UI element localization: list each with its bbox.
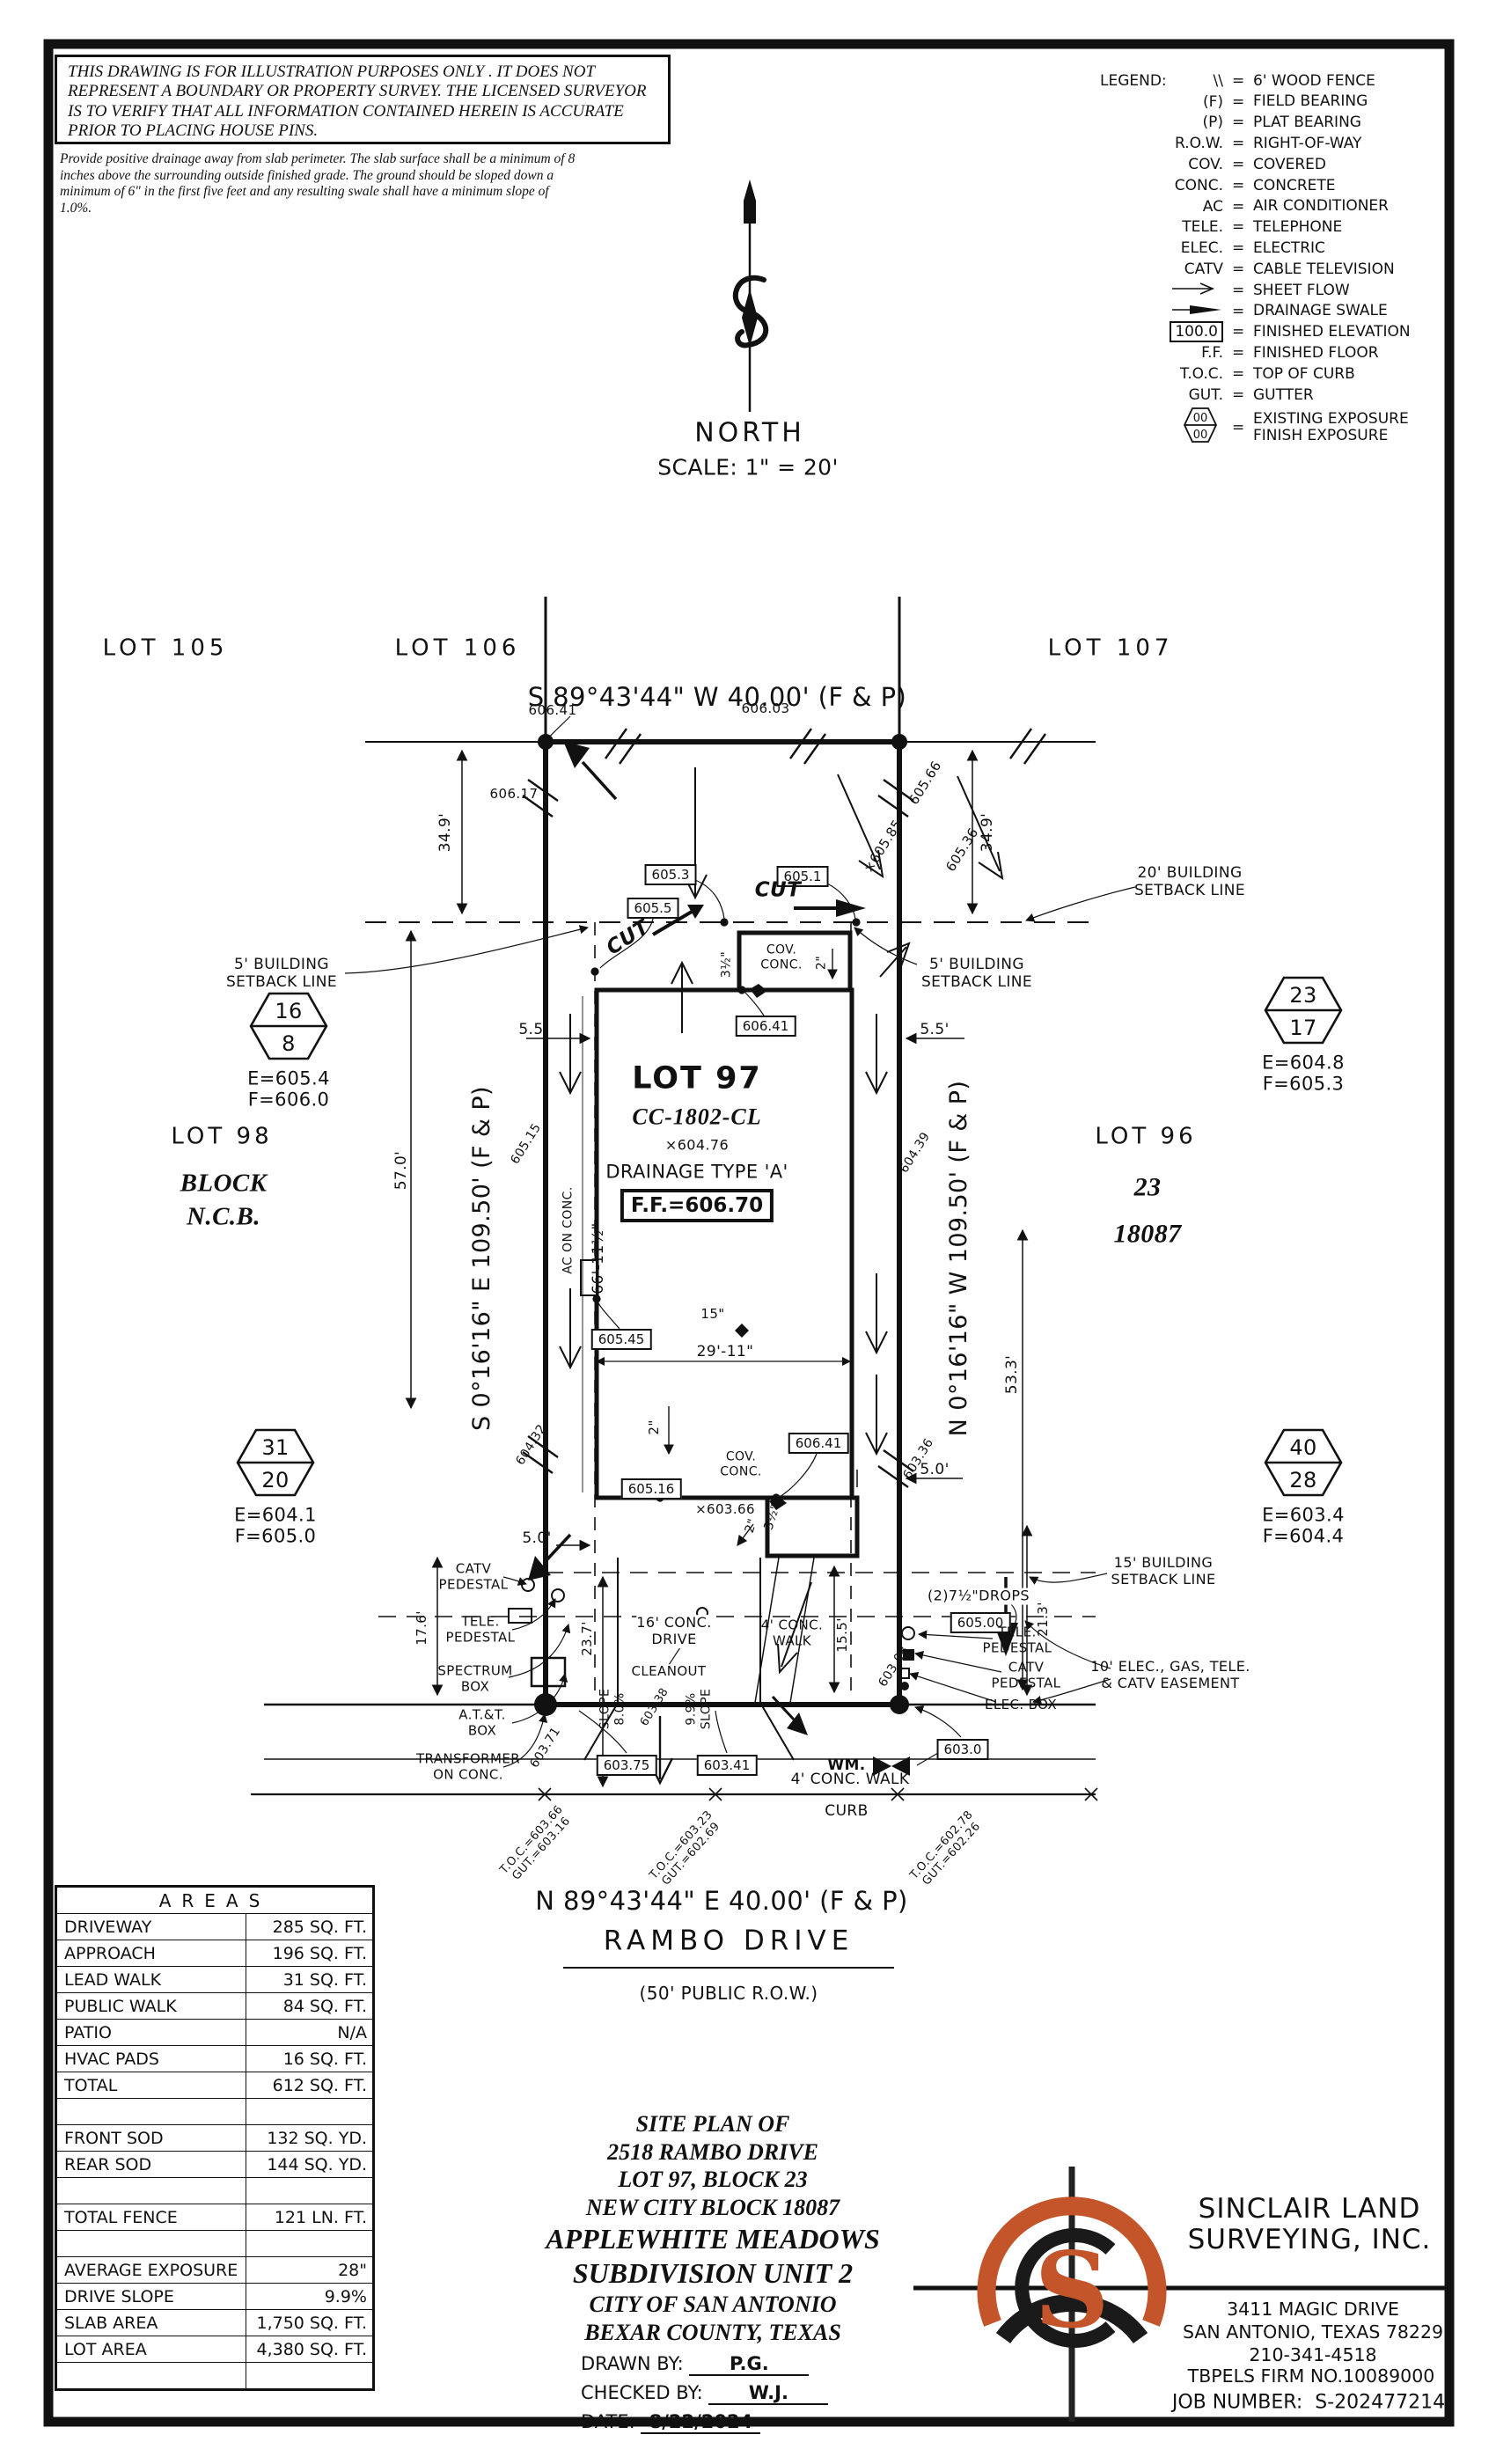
legend-symbol: ELEC. bbox=[1100, 239, 1232, 257]
legend: LEGEND: \\ = 6' WOOD FENCE (F)=FIELD BEA… bbox=[1100, 70, 1456, 450]
model-label: CC-1802-CL bbox=[632, 1104, 761, 1132]
block-23-label: 23 bbox=[1134, 1171, 1162, 1202]
svg-text:00: 00 bbox=[1193, 412, 1208, 425]
legend-symbol: T.O.C. bbox=[1100, 365, 1232, 383]
legend-symbol: CATV bbox=[1100, 260, 1232, 278]
exposure-hexagon-icon: 0000 bbox=[1100, 405, 1232, 450]
hex-marker-bottom: 8 bbox=[282, 1031, 296, 1056]
legend-symbol: F.F. bbox=[1100, 344, 1232, 362]
elevation-box: 605.5 bbox=[627, 898, 679, 919]
utility-symbols bbox=[509, 1579, 914, 1776]
lot-96-label: LOT 96 bbox=[1095, 1124, 1196, 1151]
legend-symbol: (P) bbox=[1100, 114, 1232, 131]
legend-symbol: \\ bbox=[1177, 72, 1232, 90]
finished-elevation-icon: 100.0 bbox=[1100, 323, 1232, 341]
checked-by-label: CHECKED BY: bbox=[581, 2382, 703, 2403]
legend-symbol: COV. bbox=[1100, 156, 1232, 173]
dim-57-0: 57.0' bbox=[392, 1151, 410, 1191]
table-row: LOT AREA4,380 SQ. FT. bbox=[56, 2336, 374, 2363]
covered-concrete-label: COV. CONC. bbox=[720, 1449, 762, 1478]
subdivision-name: APPLEWHITE MEADOWS bbox=[475, 2222, 950, 2256]
dim-17-6: 17.6' bbox=[414, 1610, 430, 1646]
firm-address1: 3411 MAGIC DRIVE bbox=[1227, 2299, 1399, 2320]
catv-pedestal-right-label: CATV PEDESTAL bbox=[992, 1660, 1061, 1690]
dim-21-3: 21.3' bbox=[1036, 1602, 1052, 1637]
lot-97-label: LOT 97 bbox=[632, 1060, 762, 1096]
table-row: LEAD WALK31 SQ. FT. bbox=[56, 1967, 374, 1993]
hex-marker-top: 23 bbox=[1289, 983, 1316, 1008]
title-line: CITY OF SAN ANTONIO bbox=[475, 2291, 950, 2319]
areas-table: AREAS DRIVEWAY285 SQ. FT. APPROACH196 SQ… bbox=[55, 1885, 375, 2391]
block-ncb-label: BLOCK N.C.B. bbox=[180, 1167, 268, 1233]
disclaimer-caps-text: THIS DRAWING IS FOR ILLUSTRATION PURPOSE… bbox=[68, 62, 657, 142]
spectrum-box-label: SPECTRUM BOX bbox=[437, 1663, 512, 1694]
dim-15-5: 15.5' bbox=[835, 1617, 851, 1653]
leader-lines bbox=[345, 716, 1135, 1767]
subdivision-unit: SUBDIVISION UNIT 2 bbox=[475, 2256, 950, 2291]
table-row: PUBLIC WALK84 SQ. FT. bbox=[56, 1993, 374, 2020]
survey-sheet: S THIS DRAWING IS FOR ILLUSTRATION PURPO… bbox=[0, 0, 1496, 2464]
legend-symbol: TELE. bbox=[1100, 218, 1232, 236]
elevation-box: 605.45 bbox=[591, 1329, 652, 1350]
table-row: FRONT SOD132 SQ. YD. bbox=[56, 2125, 374, 2152]
table-row: AVERAGE EXPOSURE28" bbox=[56, 2257, 374, 2284]
covered-concrete-label: COV. CONC. bbox=[760, 942, 803, 972]
spot-elevation: 606.41 bbox=[529, 703, 577, 719]
svg-text:00: 00 bbox=[1193, 429, 1208, 442]
hex-marker-bottom: 20 bbox=[261, 1468, 289, 1492]
drawn-by-label: DRAWN BY: bbox=[581, 2353, 684, 2374]
finish-exposure: F=604.4 bbox=[1263, 1526, 1345, 1548]
dim-53-3: 53.3' bbox=[1003, 1355, 1021, 1395]
setback-15-label: 15' BUILDING SETBACK LINE bbox=[1111, 1555, 1216, 1588]
drawn-by-value: P.G. bbox=[689, 2353, 809, 2376]
title-line: 2518 RAMBO DRIVE bbox=[475, 2138, 950, 2167]
cleanout-label: CLEANOUT bbox=[632, 1664, 707, 1680]
spot-elevation: ×603.66 bbox=[695, 1502, 755, 1518]
lot-106-label: LOT 106 bbox=[395, 635, 521, 663]
elevation-box: 603.0 bbox=[937, 1739, 989, 1760]
table-row: TOTAL612 SQ. FT. bbox=[56, 2072, 374, 2099]
table-row: REAR SOD144 SQ. YD. bbox=[56, 2152, 374, 2178]
elevation-box: 606.41 bbox=[788, 1433, 849, 1454]
ac-on-conc-label: AC ON CONC. bbox=[561, 1186, 576, 1273]
conc-drive-label: 16' CONC. DRIVE bbox=[636, 1615, 711, 1648]
bearing-bottom: N 89°43'44" E 40.00' (F & P) bbox=[535, 1886, 907, 1916]
table-row bbox=[56, 2178, 374, 2204]
elevation-box: 606.41 bbox=[736, 1016, 796, 1037]
legend-symbol: GUT. bbox=[1100, 386, 1232, 404]
disclaimer-note-text: Provide positive drainage away from slab… bbox=[60, 151, 579, 216]
dim-5-5-right: 5.5' bbox=[920, 1021, 949, 1038]
sheet-flow-icon bbox=[1100, 282, 1232, 299]
table-row: HVAC PADS16 SQ. FT. bbox=[56, 2046, 374, 2072]
svg-text:S: S bbox=[1034, 2229, 1109, 2351]
scale-label: SCALE: 1" = 20' bbox=[657, 454, 838, 480]
street-name-label: RAMBO DRIVE bbox=[604, 1925, 854, 1958]
legend-symbol: CONC. bbox=[1100, 177, 1232, 194]
transformer-label: TRANSFORMER ON CONC. bbox=[416, 1751, 520, 1782]
dim-5-0-left: 5.0' bbox=[522, 1529, 551, 1547]
conc-walk-street-label: 4' CONC. WALK bbox=[791, 1771, 910, 1788]
table-row: PATION/A bbox=[56, 2020, 374, 2046]
spot-elevation: 606.17 bbox=[490, 787, 539, 803]
street-row-label: (50' PUBLIC R.O.W.) bbox=[640, 1984, 818, 2005]
tele-pedestal-label: TELE. PEDESTAL bbox=[446, 1614, 516, 1645]
hex-marker-bottom: 17 bbox=[1289, 1016, 1316, 1040]
north-label: NORTH bbox=[694, 417, 805, 448]
firm-name-line1: SINCLAIR LAND bbox=[1199, 2193, 1421, 2225]
elevation-box: 603.75 bbox=[597, 1755, 657, 1776]
house-outline bbox=[581, 933, 857, 1556]
spot-elevation: ×604.76 bbox=[665, 1138, 729, 1155]
hex-marker-top: 40 bbox=[1289, 1435, 1316, 1460]
table-row: APPROACH196 SQ. FT. bbox=[56, 1940, 374, 1967]
bearing-right: N 0°16'16" W 109.50' (F & P) bbox=[945, 1081, 973, 1437]
table-row bbox=[56, 2099, 374, 2125]
table-row bbox=[56, 2231, 374, 2257]
setback-20-label: 20' BUILDING SETBACK LINE bbox=[1134, 864, 1245, 899]
ncb-18087-label: 18087 bbox=[1114, 1218, 1182, 1249]
catv-pedestal-label: CATV PEDESTAL bbox=[439, 1561, 509, 1592]
elevation-box: 605.3 bbox=[645, 864, 697, 885]
slope-8-label: SLOPE 8.0% bbox=[598, 1689, 627, 1730]
table-row: TOTAL FENCE121 LN. FT. bbox=[56, 2204, 374, 2231]
firm-address2: SAN ANTONIO, TEXAS 78229 bbox=[1183, 2321, 1443, 2343]
existing-exposure: E=604.1 bbox=[234, 1505, 317, 1527]
title-line: NEW CITY BLOCK 18087 bbox=[475, 2194, 950, 2222]
table-row: DRIVEWAY285 SQ. FT. bbox=[56, 1914, 374, 1940]
lot-107-label: LOT 107 bbox=[1048, 635, 1174, 663]
checked-by-value: W.J. bbox=[708, 2382, 828, 2405]
legend-row: LEGEND: \\ = 6' WOOD FENCE bbox=[1100, 70, 1456, 92]
curb-label: CURB bbox=[825, 1802, 868, 1820]
drainage-type-label: DRAINAGE TYPE 'A' bbox=[605, 1162, 788, 1184]
hex-marker-top: 31 bbox=[261, 1435, 289, 1460]
dim-5-5-left: 5.5' bbox=[518, 1021, 547, 1038]
dim-2in: 2" bbox=[647, 1419, 663, 1434]
setback-5-left-label: 5' BUILDING SETBACK LINE bbox=[226, 956, 337, 991]
finish-exposure: F=605.0 bbox=[235, 1526, 317, 1548]
north-arrow-icon bbox=[736, 180, 766, 412]
firm-tbpels: TBPELS FIRM NO.10089000 bbox=[1188, 2365, 1435, 2387]
att-box-label: A.T.&T. BOX bbox=[458, 1707, 506, 1738]
title-line: BEXAR COUNTY, TEXAS bbox=[475, 2319, 950, 2347]
setback-5-right-label: 5' BUILDING SETBACK LINE bbox=[921, 956, 1032, 991]
existing-exposure: E=605.4 bbox=[247, 1068, 330, 1090]
lot-105-label: LOT 105 bbox=[103, 635, 229, 663]
spot-elevation: 606.03 bbox=[742, 701, 790, 717]
dim-2in: 2" bbox=[815, 956, 830, 970]
title-block: SITE PLAN OF 2518 RAMBO DRIVE LOT 97, BL… bbox=[475, 2110, 950, 2434]
date-value: 8/22/2024 bbox=[641, 2411, 760, 2434]
elevation-box: 603.41 bbox=[697, 1755, 758, 1776]
easement-10-label: 10' ELEC., GAS, TELE. & CATV EASEMENT bbox=[1090, 1659, 1250, 1692]
lot-98-label: LOT 98 bbox=[171, 1124, 272, 1151]
table-row: DRIVE SLOPE9.9% bbox=[56, 2284, 374, 2310]
title-line: LOT 97, BLOCK 23 bbox=[475, 2166, 950, 2194]
bearing-top: S 89°43'44" W 40.00' (F & P) bbox=[528, 682, 907, 712]
dim-3-5in: 3½" bbox=[720, 951, 735, 978]
conc-walk-label: 4' CONC. WALK bbox=[761, 1617, 823, 1648]
table-row bbox=[56, 2363, 374, 2390]
cut-arrows bbox=[653, 899, 866, 935]
finish-exposure: F=605.3 bbox=[1263, 1074, 1345, 1096]
title-line: SITE PLAN OF bbox=[475, 2110, 950, 2138]
bearing-left: S 0°16'16" E 109.50' (F & P) bbox=[468, 1086, 496, 1431]
dim-29-11: 29'-11" bbox=[692, 1343, 759, 1360]
dim-15in: 15" bbox=[700, 1307, 724, 1323]
areas-title: AREAS bbox=[56, 1887, 374, 1914]
legend-title: LEGEND: bbox=[1100, 72, 1177, 90]
existing-exposure: E=603.4 bbox=[1262, 1505, 1345, 1527]
hex-marker-top: 16 bbox=[275, 999, 302, 1023]
dim-23-7: 23.7' bbox=[580, 1621, 596, 1656]
dim-34-9-left: 34.9' bbox=[436, 813, 454, 853]
firm-name-line2: SURVEYING, INC. bbox=[1188, 2224, 1432, 2255]
existing-exposure: E=604.8 bbox=[1262, 1052, 1345, 1074]
drops-label: (2)7½"DROPS bbox=[928, 1588, 1030, 1605]
job-number: JOB NUMBER: S-202477214 bbox=[1172, 2392, 1445, 2414]
elec-box-label: ELEC. BOX bbox=[985, 1698, 1057, 1713]
finished-floor-box: F.F.=606.70 bbox=[620, 1189, 774, 1222]
disclaimer-box: THIS DRAWING IS FOR ILLUSTRATION PURPOSE… bbox=[55, 55, 671, 144]
table-row: SLAB AREA1,750 SQ. FT. bbox=[56, 2310, 374, 2336]
elevation-box: 605.16 bbox=[621, 1478, 682, 1500]
dim-66-11: 66'-11½" bbox=[590, 1222, 607, 1294]
slope-9-label: 9.9% SLOPE bbox=[684, 1689, 713, 1730]
dim-34-9-right: 34.9' bbox=[979, 813, 996, 853]
finish-exposure: F=606.0 bbox=[248, 1089, 330, 1111]
legend-symbol: R.O.W. bbox=[1100, 135, 1232, 152]
cut-label: CUT bbox=[755, 878, 801, 902]
drainage-swale-icon bbox=[1100, 303, 1232, 320]
legend-symbol: (F) bbox=[1100, 93, 1232, 111]
hex-marker-bottom: 28 bbox=[1289, 1468, 1316, 1492]
legend-symbol: AC bbox=[1100, 198, 1232, 216]
firm-phone: 210-341-4518 bbox=[1249, 2344, 1376, 2365]
date-label: DATE: bbox=[581, 2411, 635, 2432]
